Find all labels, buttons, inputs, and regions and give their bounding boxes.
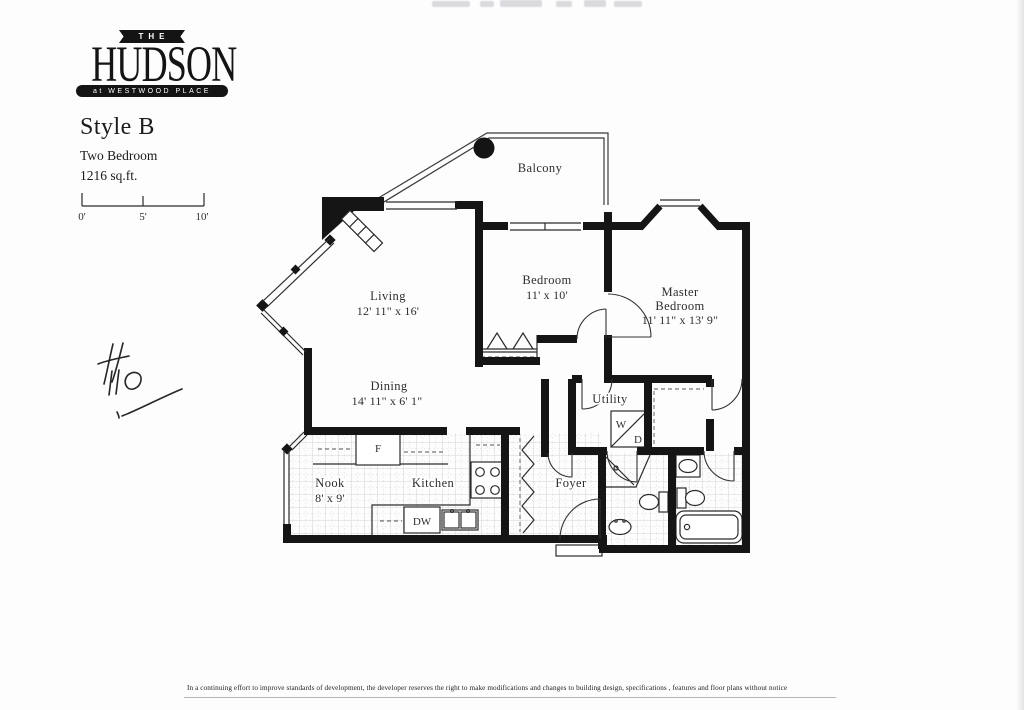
label-foyer: Foyer — [555, 476, 587, 490]
scale-0: 0' — [78, 211, 86, 223]
dims-living: 12' 11" x 16' — [357, 304, 419, 318]
entry-step — [556, 545, 602, 556]
vanity-sink — [679, 460, 697, 473]
dims-bedroom: 11' x 10' — [526, 288, 568, 302]
floorplan-drawing: 0' 5' 10' — [0, 0, 1024, 710]
scanned-floorplan-page: { "logo": { "the": "THE", "name": "HUDSO… — [0, 0, 1024, 710]
master-toilet — [686, 491, 705, 506]
label-living: Living — [370, 289, 406, 303]
kitchen-sink — [442, 510, 478, 530]
master-toilet-tank — [677, 488, 686, 508]
logo-the-ribbon: THE — [119, 30, 185, 43]
label-utility: Utility — [592, 392, 628, 406]
label-balcony: Balcony — [518, 161, 563, 175]
label-master-1: Master — [661, 285, 699, 299]
label-master-2: Bedroom — [655, 299, 704, 313]
label-bedroom: Bedroom — [522, 273, 571, 287]
scale-5: 5' — [139, 211, 147, 223]
scan-edge-shadow — [1016, 0, 1024, 710]
label-kitchen: Kitchen — [412, 476, 455, 490]
pedestal-sink — [609, 520, 631, 535]
handwritten-unit-number — [98, 343, 182, 418]
balcony-column — [474, 138, 495, 159]
toilet — [640, 495, 659, 510]
label-dining: Dining — [370, 379, 407, 393]
scale-bar: 0' 5' 10' — [78, 193, 208, 223]
footer-disclaimer: In a continuing effort to improve standa… — [187, 684, 847, 692]
scale-10: 10' — [196, 211, 209, 223]
label-nook: Nook — [315, 476, 345, 490]
toilet-tank — [659, 492, 668, 512]
dims-master: 11' 11" x 13' 9" — [642, 313, 718, 327]
bathtub — [676, 511, 742, 543]
footer-rule — [184, 697, 836, 698]
label-dishwasher: DW — [413, 516, 432, 528]
balcony-railing — [370, 133, 608, 208]
label-fridge: F — [375, 443, 381, 455]
label-washer: W — [616, 419, 627, 431]
label-dryer: D — [634, 434, 642, 446]
dims-dining: 14' 11" x 6' 1" — [352, 394, 423, 408]
dims-nook: 8' x 9' — [315, 491, 345, 505]
fireplace — [342, 211, 383, 252]
